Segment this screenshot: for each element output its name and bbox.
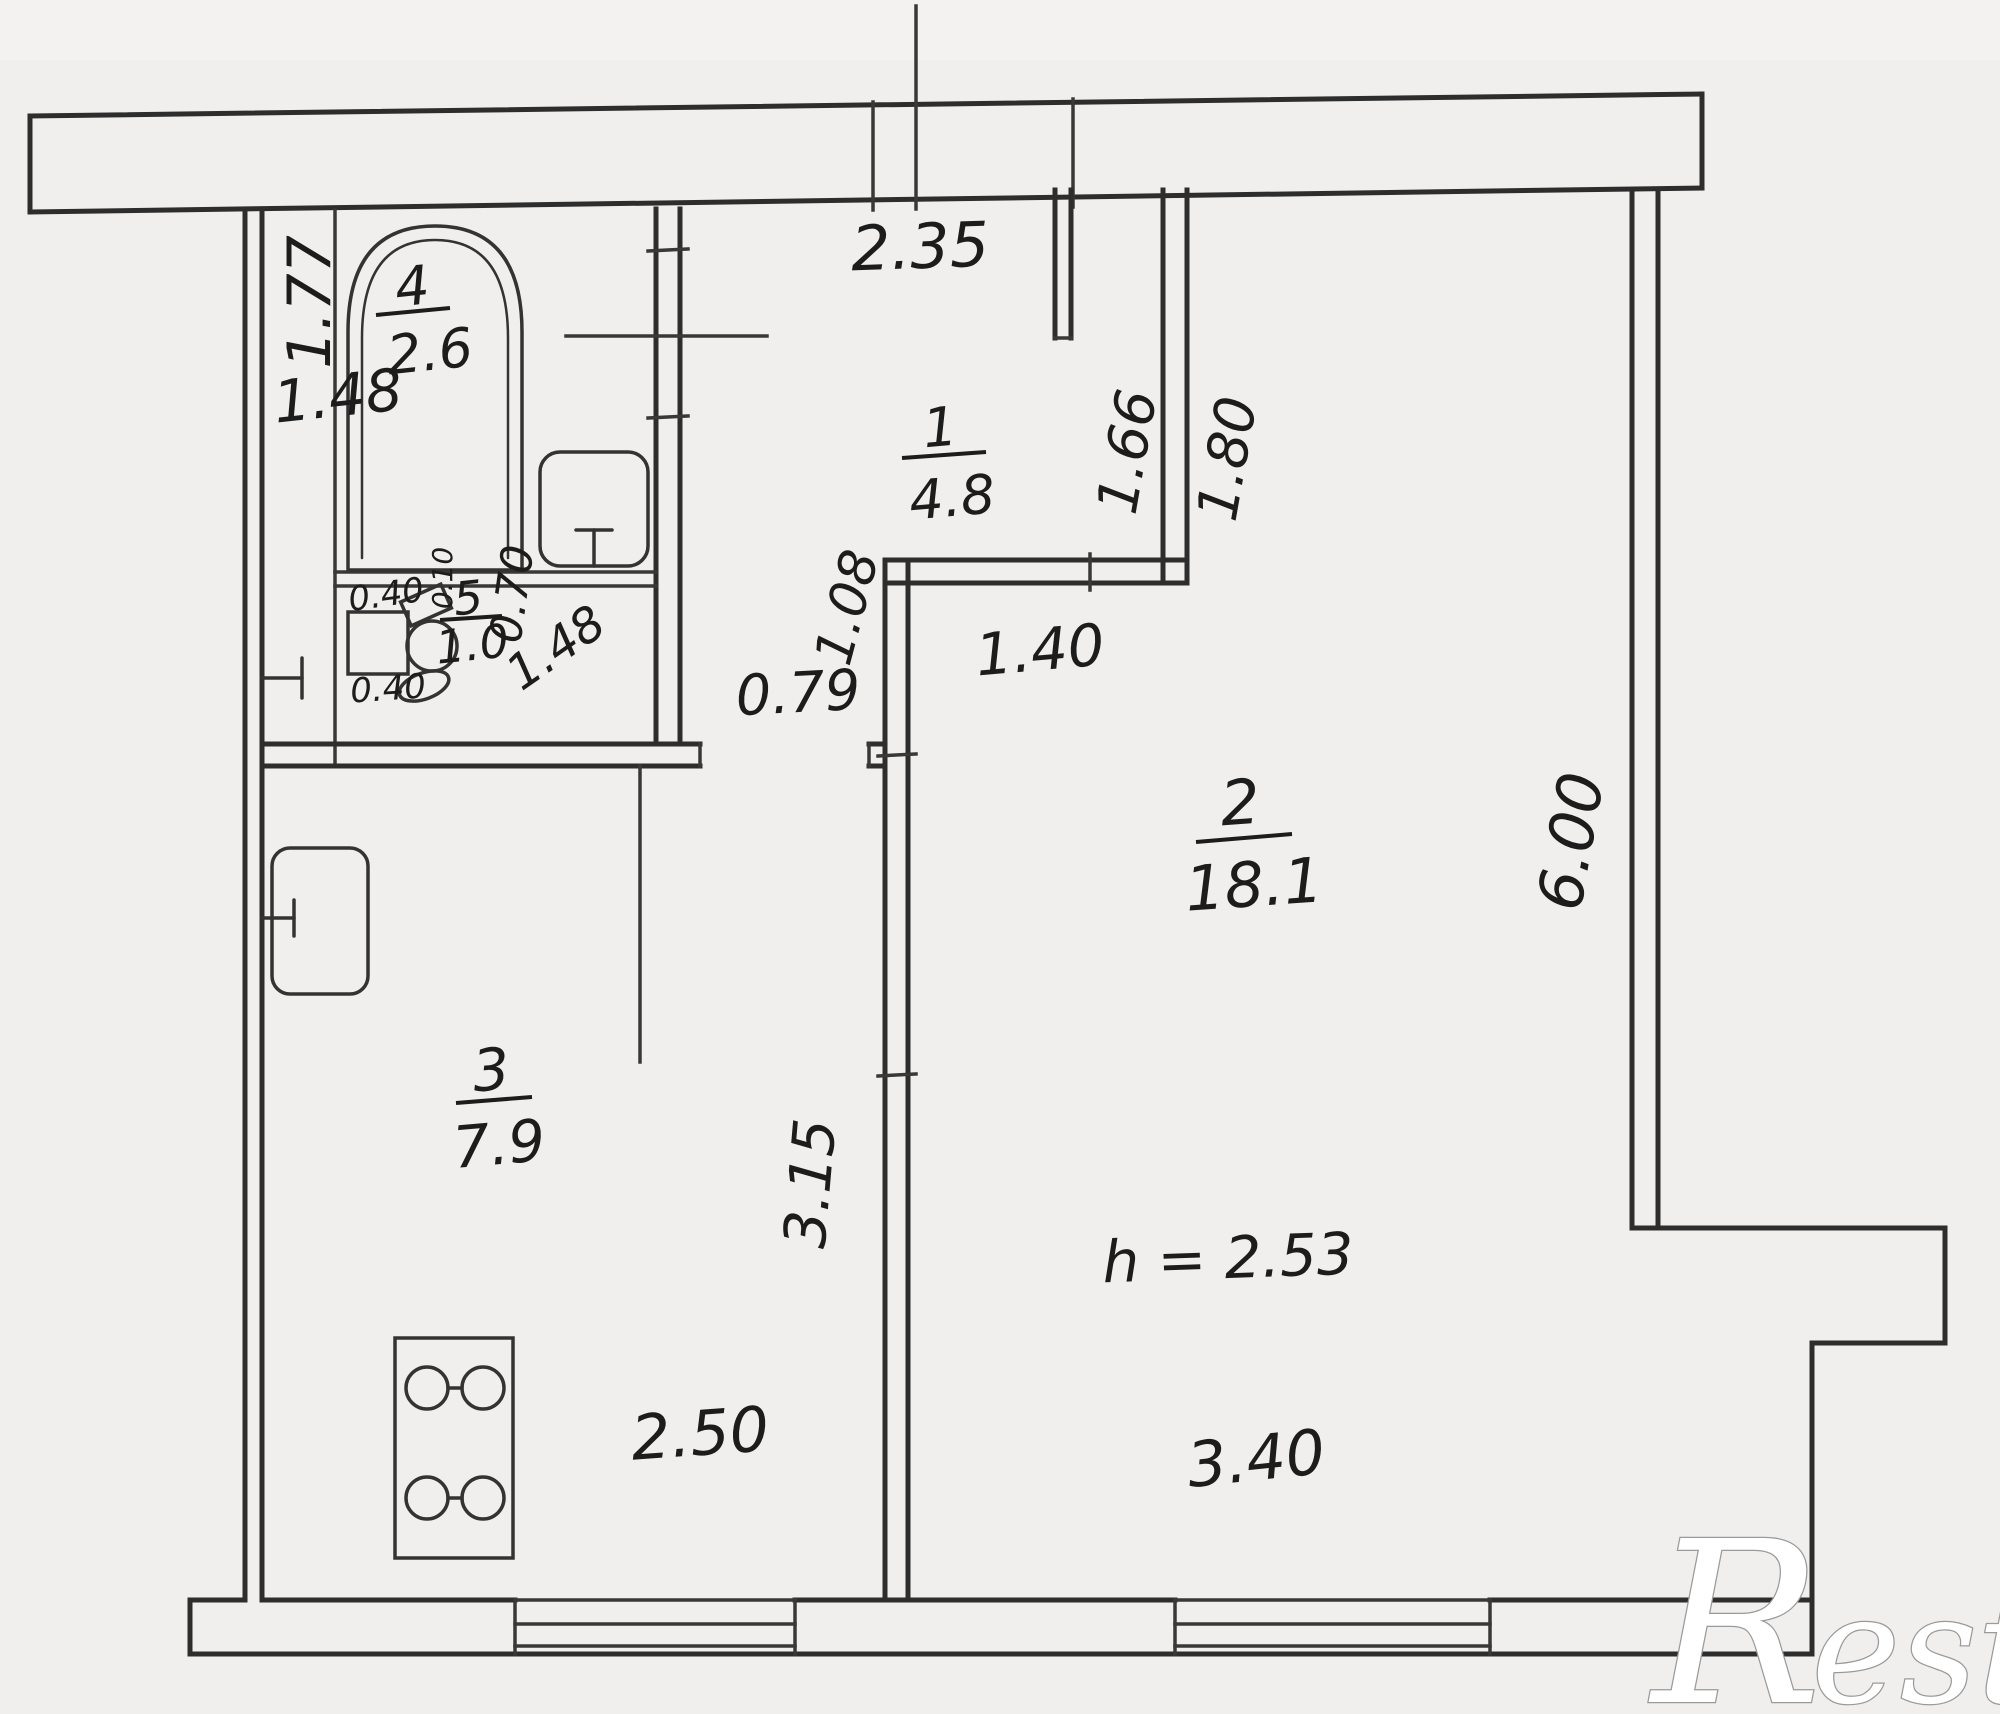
wall-tick xyxy=(878,1074,916,1076)
dim-room2-window: 3.40 xyxy=(1184,1415,1329,1502)
dim-sink-bottom: 0.40 xyxy=(349,666,427,711)
watermark-initial: R xyxy=(1648,1494,1821,1714)
dim-bath-width: 1.48 xyxy=(270,355,406,436)
room2-number: 2 xyxy=(1218,765,1262,841)
dim-top-span: 2.35 xyxy=(850,208,991,286)
room1-number: 1 xyxy=(920,395,960,461)
dim-closet-width: 1.40 xyxy=(973,611,1108,690)
wall-tick xyxy=(648,416,688,418)
room3-area: 7.9 xyxy=(450,1106,548,1182)
ceiling-height-note: h = 2.53 xyxy=(1101,1220,1355,1297)
watermark-text: estate xyxy=(1811,1564,2000,1714)
room3-number: 3 xyxy=(470,1035,513,1106)
room4-area: 2.6 xyxy=(384,316,476,388)
dim-kitchen-wall: 3.15 xyxy=(771,1116,850,1251)
dim-bath-length: 1.77 xyxy=(275,235,345,369)
dim-hall-opening: 0.79 xyxy=(734,658,862,729)
scanned-floor-plan-page: 2.35 1.77 1.48 1.66 1.80 1.40 1.08 0.79 … xyxy=(0,0,2000,1714)
wall-tick xyxy=(648,249,688,251)
floor-plan-canvas: 2.35 1.77 1.48 1.66 1.80 1.40 1.08 0.79 … xyxy=(0,0,2000,1714)
room1-area: 4.8 xyxy=(907,462,998,532)
dim-kitchen-window: 2.50 xyxy=(629,1392,772,1474)
room2-area: 18.1 xyxy=(1183,843,1326,925)
wall-tick xyxy=(878,754,916,756)
room5-area: 1.0 xyxy=(433,613,511,674)
paper-edge-light xyxy=(0,0,2000,60)
